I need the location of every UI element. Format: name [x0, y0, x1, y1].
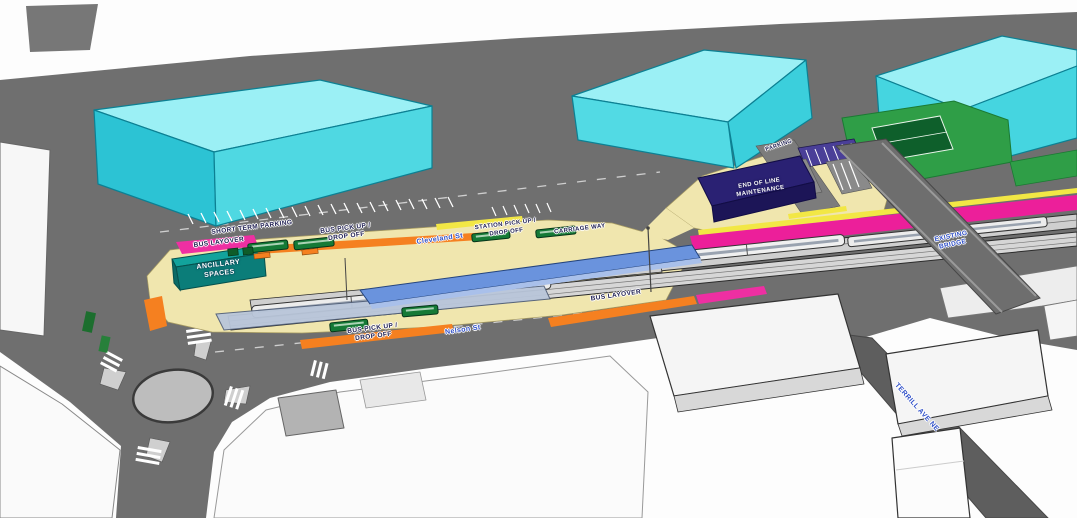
- small-building-south: [278, 390, 344, 436]
- building-west-edge: [0, 142, 50, 336]
- site-plan-canvas: [0, 0, 1077, 518]
- light-pole-head: [646, 226, 650, 230]
- site-plan-rendering: BUS LAYOVER SHORT TERM PARKING BUS PICK …: [0, 0, 1077, 518]
- bus-shelter: [243, 247, 254, 255]
- building-east-small: [1044, 300, 1077, 340]
- road-corner-top-left: [26, 4, 98, 52]
- building-tower-southeast: [892, 428, 970, 518]
- bus-shelter: [228, 248, 239, 256]
